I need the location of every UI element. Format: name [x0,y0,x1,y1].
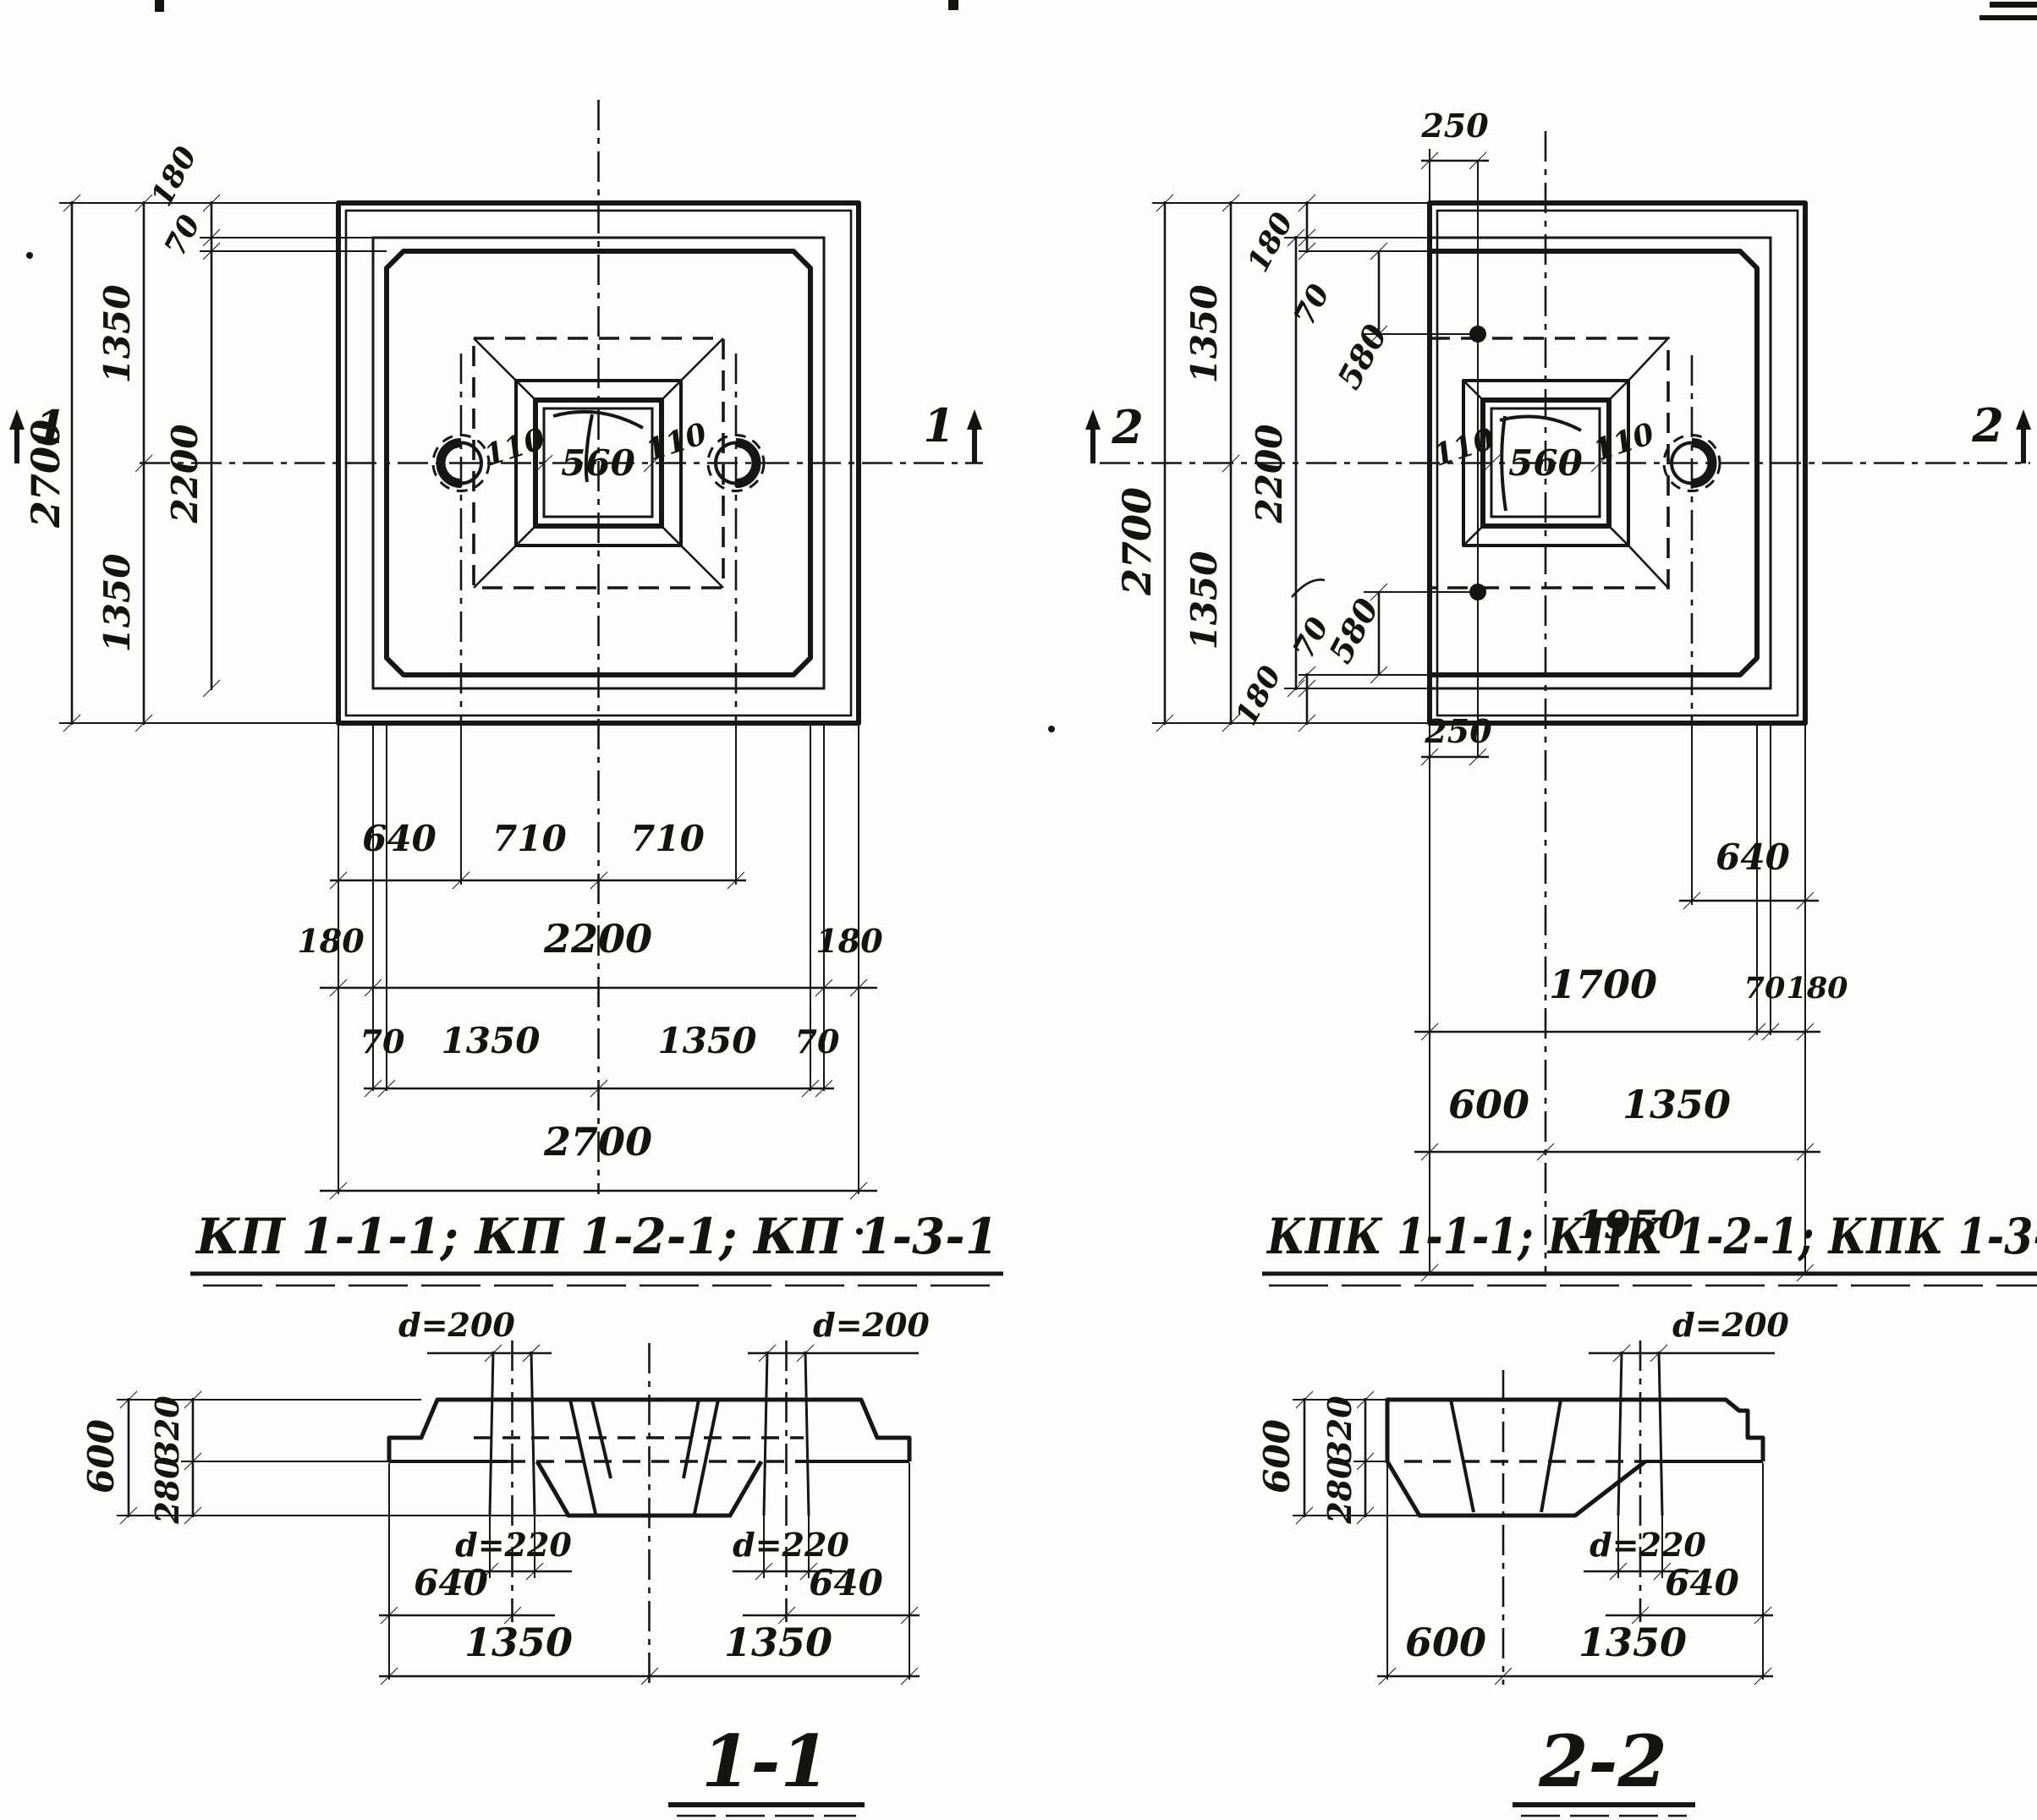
dim-label: d=220 [455,1526,572,1564]
blueprint-sheet: 2700 1350 1350 2200 180 70 110 560 110 6… [0,0,2037,1820]
headers: КП 1-1-1; КП 1-2-1; КП 1-3-1 КПК 1-1-1; … [190,1208,2037,1286]
dim-label: 1350 [658,1020,757,1061]
dim-label: 1350 [464,1620,573,1665]
dim-label: 640 [1665,1562,1739,1603]
dim-label: 280 [1320,1456,1359,1525]
plan-left: 2700 1350 1350 2200 180 70 110 560 110 6… [9,100,983,1199]
plan-right-dimensions: 250 250 2700 1350 1350 2200 180 70 580 5… [1114,107,1848,1281]
title-plates-kp: КП 1-1-1; КП 1-2-1; КП 1-3-1 [195,1208,998,1265]
plan-left-dimensions: 2700 1350 1350 2200 180 70 110 560 110 6… [23,141,883,1199]
socket-wall [1451,1400,1561,1512]
dim-label: 2200 [1249,425,1290,524]
dim-label: 110 [480,421,549,474]
section-1-1-dimensions: d=200 d=200 d=220 d=220 600 320 280 640 … [80,1306,930,1685]
dim-label: 1350 [1183,285,1225,384]
plan-right: 250 250 2700 1350 1350 2200 180 70 580 5… [1085,107,2031,1281]
socket-wall [570,1400,718,1514]
dim-label: 1350 [724,1620,832,1665]
dim-label: 640 [1716,836,1790,878]
dim-label: 1350 [96,554,138,653]
dim-label: 110 [1429,421,1498,474]
section-2-2-dimensions: d=200 d=220 600 320 280 640 600 1350 [1256,1306,1789,1685]
section-marker-label: 2 [1111,400,1144,454]
section-2-2: d=200 d=220 600 320 280 640 600 1350 2-2 [1256,1306,1789,1816]
dim-label: 600 [1256,1419,1298,1494]
dim-label: 640 [414,1562,488,1603]
dim-label: 560 [1508,442,1583,484]
dim-label: 600 [80,1419,122,1494]
dim-label: 560 [561,442,635,484]
dim-label: 70 [1744,971,1786,1006]
dim-label: 1700 [1549,962,1657,1007]
scan-artifacts [26,0,2037,1235]
dim-label: 250 [1424,712,1492,750]
section-1-1-title: 1-1 [668,1719,865,1816]
dim-label: 2200 [543,916,652,962]
section-title: 1-1 [701,1719,830,1803]
dim-label: 320 [148,1395,186,1463]
section-marker-label: 1 [35,400,67,454]
dim-label: 580 [1330,318,1395,396]
section-2-2-title: 2-2 [1513,1719,1695,1816]
dim-label: 70 [795,1022,840,1061]
section-marker-1-right: 1 [923,398,982,463]
dim-label: 250 [1420,107,1489,145]
dim-label: 1350 [96,285,138,384]
dim-label: 2700 [1114,487,1160,596]
dim-label: 1350 [1183,551,1225,650]
dim-label: 180 [1229,661,1289,732]
dim-label: d=220 [733,1526,849,1564]
dim-label: 180 [815,922,883,960]
dim-label: 710 [492,818,567,859]
dim-label: 70 [360,1022,405,1061]
dim-label: 280 [148,1456,186,1525]
dim-label: 2700 [543,1119,652,1165]
dim-label: d=200 [398,1306,515,1344]
dim-label: 1350 [1579,1620,1687,1665]
dim-label: 320 [1320,1395,1359,1463]
dim-label: d=200 [813,1306,930,1344]
section-marker-2-left: 2 [1085,400,1144,463]
dim-label: 70 [1286,611,1336,664]
section-title: 2-2 [1538,1719,1667,1803]
dim-label: 2200 [164,425,206,524]
dim-label: 1350 [442,1020,541,1061]
title-plates-kpk: КПК 1-1-1; КПК 1-2-1; КПК 1-3-1 [1266,1208,2037,1265]
dim-label: 1350 [1622,1082,1731,1127]
dim-label: 640 [362,818,436,859]
dim-label: 600 [1405,1620,1486,1665]
section-marker-label: 1 [923,398,955,452]
dim-label: 70 [1287,278,1337,331]
funnel-edge [1387,1461,1645,1516]
dim-label: 710 [630,818,705,859]
dim-label: 600 [1448,1082,1529,1127]
drawing-canvas: 2700 1350 1350 2200 180 70 110 560 110 6… [0,0,2037,1820]
dim-label: d=220 [1590,1526,1706,1564]
section-2-2-outline [1387,1351,1763,1578]
section-marker-1-left: 1 [9,400,67,463]
section-marker-label: 2 [1971,398,2004,452]
dim-label: 70 [157,209,207,261]
dim-label: 640 [809,1562,883,1603]
dim-label: 180 [297,922,365,960]
dim-label: 180 [1786,971,1848,1006]
section-1-1: d=200 d=200 d=220 d=220 600 320 280 640 … [80,1306,930,1816]
dim-label: 180 [145,141,205,212]
dim-label: d=200 [1672,1306,1789,1344]
section-marker-2-right: 2 [1971,398,2031,463]
